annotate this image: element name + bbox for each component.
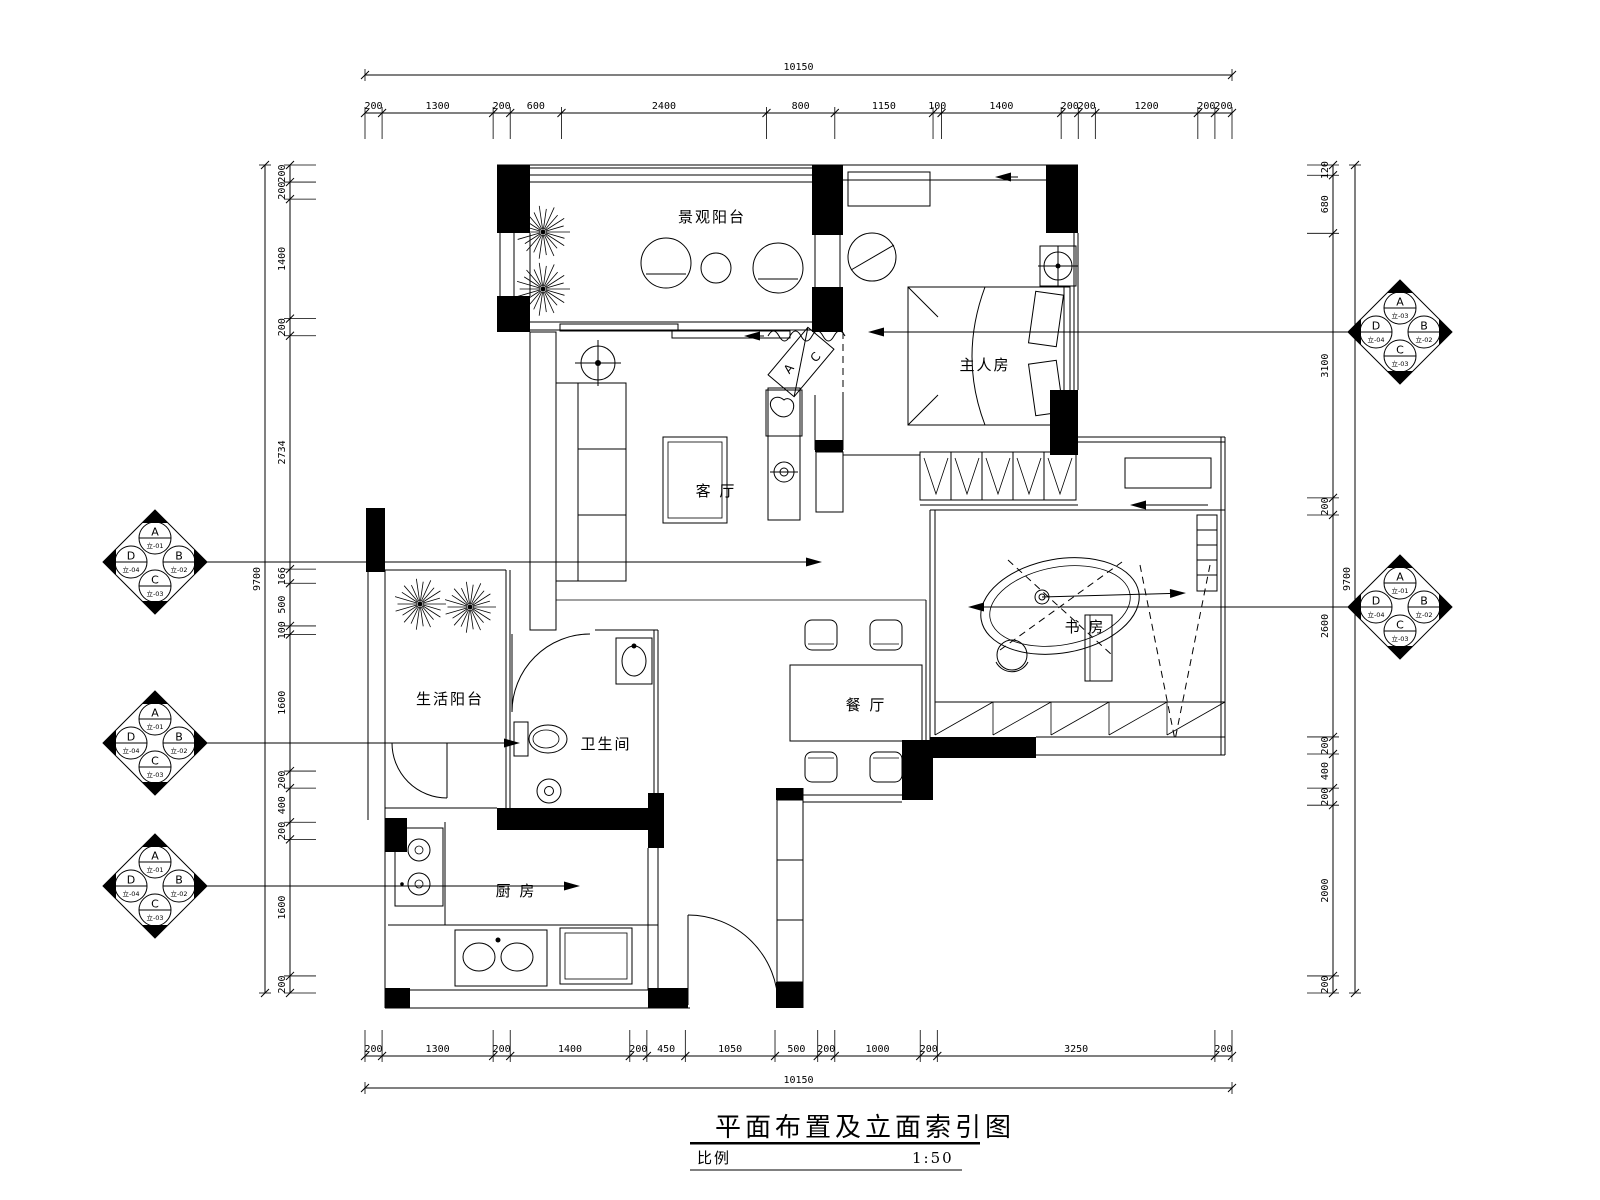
entry-door-arc <box>688 915 778 1005</box>
plant <box>445 582 496 633</box>
dim-chain-left: 2002001400200273416650010016002004002001… <box>277 161 316 997</box>
dim-total-label: 9700 <box>1342 567 1353 591</box>
ceiling-lamp <box>575 340 621 386</box>
dim-segment-label: 800 <box>792 101 810 112</box>
elevation-symbol-kitchen: A立-01B立-02C立-03D立-04 <box>103 834 207 938</box>
wardrobe <box>920 452 1076 500</box>
dim-total-left: 9700 <box>252 161 271 997</box>
dim-segment-label: 200 <box>1320 788 1331 806</box>
scale-value: 1:50 <box>912 1149 954 1167</box>
toilet <box>514 722 567 756</box>
elevation-quadrant-code: 立-03 <box>146 913 163 922</box>
dim-segment-label: 200 <box>277 771 288 789</box>
dim-segment-label: 1300 <box>426 101 450 112</box>
dim-segment-label: 3250 <box>1064 1044 1088 1055</box>
drawing-sheet: A C <box>0 0 1600 1200</box>
room-label-living: 客 厅 <box>696 482 737 500</box>
dim-segment-label: 1400 <box>989 101 1013 112</box>
elevation-quadrant-letter: A <box>151 850 159 863</box>
dim-segment-label: 200 <box>1214 1044 1232 1055</box>
elevation-quadrant-letter: A <box>151 526 159 539</box>
dim-segment-label: 500 <box>787 1044 805 1055</box>
dim-segment-label: 200 <box>1078 101 1096 112</box>
dim-segment-label: 450 <box>657 1044 675 1055</box>
ac-label-top: A <box>781 360 798 376</box>
dim-segment-label: 600 <box>527 101 545 112</box>
elevation-quadrant-letter: B <box>175 550 183 563</box>
sofa <box>556 383 626 581</box>
dim-total-top: 10150 <box>361 62 1236 81</box>
dim-total-bottom: 10150 <box>361 1075 1236 1094</box>
dim-segment-label: 200 <box>1320 736 1331 754</box>
dim-segment-label: 1400 <box>558 1044 582 1055</box>
view-arrow-study <box>968 603 1348 612</box>
dim-segment-label: 2000 <box>1320 879 1331 903</box>
drawing-title: 平面布置及立面索引图 <box>715 1113 1015 1143</box>
elevation-quadrant-letter: D <box>1372 320 1380 333</box>
elevation-quadrant-code: 立-04 <box>1367 335 1384 344</box>
arrow-study-rug <box>1042 589 1186 598</box>
elevation-quadrant-letter: B <box>175 731 183 744</box>
elevation-quadrant-code: 立-03 <box>1391 634 1408 643</box>
scale-label: 比例 <box>697 1149 731 1167</box>
dim-segment-label: 1200 <box>1135 101 1159 112</box>
bathroom-door-arc <box>512 634 590 712</box>
kitchen-cabinet <box>560 928 632 984</box>
elevation-quadrant-code: 立-03 <box>1391 359 1408 368</box>
dim-segment-label: 2600 <box>1320 614 1331 638</box>
dim-segment-label: 200 <box>493 1044 511 1055</box>
dim-segment-label: 200 <box>277 822 288 840</box>
elevation-quadrant-letter: B <box>175 874 183 887</box>
dim-segment-label: 400 <box>277 796 288 814</box>
kitchen-sink <box>455 930 547 986</box>
dim-segment-label: 200 <box>629 1044 647 1055</box>
master-chair <box>848 233 896 281</box>
dim-segment-label: 1400 <box>277 247 288 271</box>
elevation-quadrant-code: 立-01 <box>1391 586 1408 595</box>
study-dashed-line <box>1000 562 1122 650</box>
nightstand-lamp <box>1038 246 1078 286</box>
elevation-symbol-living: A立-01B立-02C立-03D立-04 <box>103 510 207 614</box>
elevation-quadrant-letter: C <box>1396 619 1404 632</box>
title-block: 平面布置及立面索引图 比例 1:50 <box>690 1113 1015 1170</box>
elevation-quadrant-code: 立-04 <box>122 746 139 755</box>
tv-bench <box>766 388 802 520</box>
wardrobe-swing-dashed <box>1140 565 1175 740</box>
dim-segment-label: 166 <box>277 567 288 585</box>
elevation-quadrant-code: 立-01 <box>146 722 163 731</box>
elevation-quadrant-code: 立-04 <box>122 565 139 574</box>
elevation-quadrant-letter: A <box>1396 296 1404 309</box>
dim-segment-label: 200 <box>277 182 288 200</box>
elevation-quadrant-code: 立-02 <box>1415 335 1432 344</box>
elevation-quadrant-code: 立-04 <box>122 889 139 898</box>
elevation-quadrant-letter: C <box>151 574 159 587</box>
view-arrow-bath <box>207 739 520 748</box>
dim-total-right: 9700 <box>1342 161 1361 997</box>
dim-segment-label: 200 <box>365 1044 383 1055</box>
room-label-study: 书 房 <box>1065 618 1106 636</box>
dim-segment-label: 120 <box>1320 161 1331 179</box>
dim-total-label: 9700 <box>252 567 263 591</box>
balcony-chair <box>753 243 803 293</box>
utility-door-arc <box>392 743 447 798</box>
elevation-quadrant-letter: C <box>1396 344 1404 357</box>
dim-segment-label: 2734 <box>277 440 288 464</box>
elevation-quadrant-letter: C <box>151 755 159 768</box>
dim-segment-label: 200 <box>1320 497 1331 515</box>
room-label-balcony: 景观阳台 <box>678 208 746 226</box>
room-label-bath: 卫生间 <box>580 735 631 753</box>
room-label-utility: 生活阳台 <box>416 690 484 708</box>
dim-segment-label: 100 <box>928 101 946 112</box>
dim-segment-label: 200 <box>1214 101 1232 112</box>
dim-segment-label: 200 <box>920 1044 938 1055</box>
room-label-dining: 餐 厅 <box>846 696 887 714</box>
dim-segment-label: 3100 <box>1320 354 1331 378</box>
dim-total-label: 10150 <box>783 62 813 73</box>
dim-segment-label: 200 <box>1197 101 1215 112</box>
dim-segment-label: 200 <box>277 975 288 993</box>
dim-total-label: 10150 <box>783 1075 813 1086</box>
elevation-quadrant-letter: D <box>127 731 135 744</box>
dim-segment-label: 200 <box>817 1044 835 1055</box>
elevation-quadrant-code: 立-04 <box>1367 610 1384 619</box>
dim-segment-label: 1000 <box>865 1044 889 1055</box>
floor-plan-svg: A C <box>0 0 1600 1200</box>
dim-chain-bottom: 2001300200140020045010505002001000200325… <box>361 1030 1236 1062</box>
elevation-quadrant-code: 立-01 <box>146 865 163 874</box>
dim-segment-label: 200 <box>277 165 288 183</box>
elevation-quadrant-code: 立-03 <box>146 589 163 598</box>
dim-segment-label: 1300 <box>426 1044 450 1055</box>
room-label-master: 主人房 <box>959 356 1010 374</box>
dim-segment-label: 2400 <box>652 101 676 112</box>
view-arrow-living <box>207 558 822 567</box>
dim-segment-label: 1600 <box>277 896 288 920</box>
elevation-quadrant-letter: A <box>1396 571 1404 584</box>
elevation-quadrant-code: 立-03 <box>1391 311 1408 320</box>
elevation-quadrant-code: 立-01 <box>146 541 163 550</box>
balcony-chair <box>641 238 691 288</box>
view-arrow-master <box>868 328 1348 337</box>
elevation-symbol-study: A立-01B立-02C立-03D立-04 <box>1348 555 1452 659</box>
floor-drain <box>537 779 561 803</box>
elevation-quadrant-letter: D <box>127 874 135 887</box>
elevation-quadrant-letter: D <box>1372 595 1380 608</box>
dining-chair <box>805 752 837 782</box>
elevation-quadrant-letter: A <box>151 707 159 720</box>
dim-segment-label: 200 <box>277 318 288 336</box>
elevation-quadrant-code: 立-03 <box>146 770 163 779</box>
dim-segment-label: 500 <box>277 596 288 614</box>
coffee-table <box>663 437 727 523</box>
dim-segment-label: 680 <box>1320 195 1331 213</box>
balcony-table <box>701 253 731 283</box>
arrow-bay-cabinet <box>1130 501 1208 510</box>
dim-chain-right: 120680310020026002004002002000200 <box>1307 161 1339 997</box>
dining-chair <box>870 620 902 650</box>
elevation-quadrant-letter: D <box>127 550 135 563</box>
dim-segment-label: 200 <box>365 101 383 112</box>
dim-segment-label: 1600 <box>277 691 288 715</box>
bath-sink <box>616 638 652 684</box>
elevation-quadrant-code: 立-02 <box>170 565 187 574</box>
elevation-quadrant-letter: C <box>151 898 159 911</box>
elevation-quadrant-letter: B <box>1420 320 1428 333</box>
dim-segment-label: 1050 <box>718 1044 742 1055</box>
title-underline <box>690 1142 980 1145</box>
dim-segment-label: 100 <box>277 621 288 639</box>
dining-chair <box>870 752 902 782</box>
arrow-curtain <box>744 332 764 341</box>
dim-segment-label: 200 <box>1061 101 1079 112</box>
elevation-symbol-bath: A立-01B立-02C立-03D立-04 <box>103 691 207 795</box>
ac-label-bottom: C <box>807 349 823 364</box>
elevation-quadrant-code: 立-02 <box>1415 610 1432 619</box>
bay-cabinet <box>1125 458 1211 488</box>
study-chair <box>996 640 1028 672</box>
dim-segment-label: 1150 <box>872 101 896 112</box>
elevation-quadrant-letter: B <box>1420 595 1428 608</box>
elevation-quadrant-code: 立-02 <box>170 889 187 898</box>
room-label-kitchen: 厨 房 <box>496 882 537 900</box>
elevation-quadrant-code: 立-02 <box>170 746 187 755</box>
dim-segment-label: 200 <box>1320 975 1331 993</box>
dim-chain-top: 2001300200600240080011501001400200200120… <box>361 101 1236 139</box>
dining-chair <box>805 620 837 650</box>
elevation-symbol-master: A立-03B立-02C立-03D立-04 <box>1348 280 1452 384</box>
plant <box>395 579 446 630</box>
dim-segment-label: 200 <box>493 101 511 112</box>
dim-segment-label: 400 <box>1320 762 1331 780</box>
